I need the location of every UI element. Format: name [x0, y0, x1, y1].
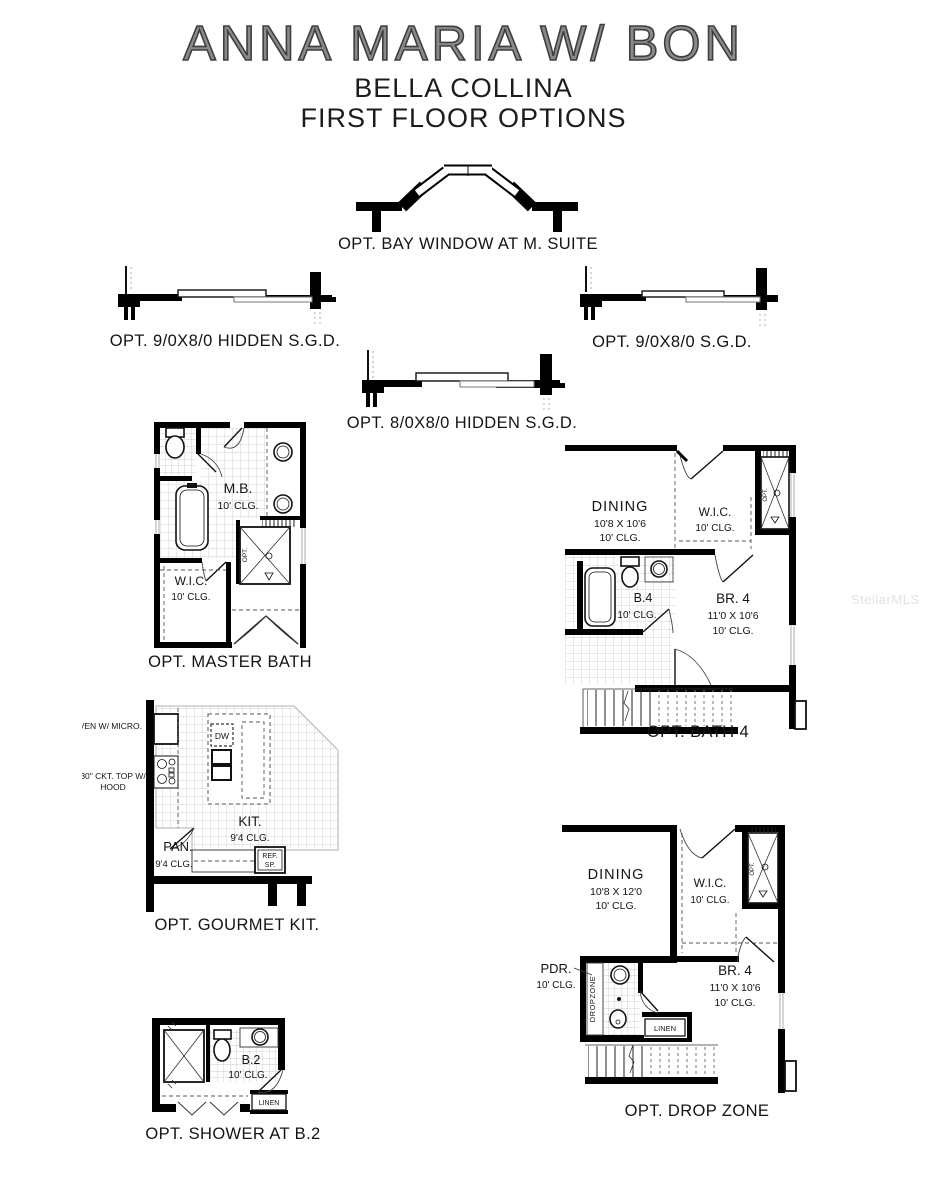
br4-label: BR. 4	[716, 591, 750, 606]
pantry-label: PAN.	[163, 839, 192, 854]
br4-ceiling: 10' CLG.	[712, 625, 753, 637]
br4-ceiling: 10' CLG.	[714, 997, 755, 1009]
dining-ceiling: 10' CLG.	[595, 900, 636, 912]
dining-label: DINING	[592, 499, 649, 515]
wic-label: W.I.C.	[699, 505, 732, 519]
bay-window-glass	[417, 165, 517, 193]
wic-room: W.I.C. 10' CLG.	[675, 451, 751, 549]
sheet-header: ANNA MARIA W/ BON BELLA COLLINA FIRST FL…	[0, 18, 927, 133]
stairs	[585, 1045, 718, 1077]
drop-zone-caption: OPT. DROP ZONE	[587, 1102, 807, 1121]
sgd-drawing	[116, 264, 338, 328]
shower-icon: OPT.	[761, 451, 789, 529]
sgd-hidden-90-caption: OPT. 9/0X8/0 HIDDEN S.G.D.	[100, 332, 350, 351]
br4-size: 11'0 X 10'6	[709, 982, 760, 994]
dw-label: DW	[215, 731, 229, 741]
shower-opt-label: OPT.	[763, 488, 769, 502]
pdr-ceiling: 10' CLG.	[536, 980, 575, 991]
linen-label: LINEN	[654, 1024, 676, 1033]
master-bath-caption: OPT. MASTER BATH	[120, 653, 340, 672]
drop-zone-drawing: DINING 10'8 X 12'0 10' CLG. W.I.C. 10' C…	[530, 813, 815, 1108]
sgd-hidden-80-caption: OPT. 8/0X8/0 HIDDEN S.G.D.	[340, 414, 584, 433]
shower-opt-label: OPT.	[750, 862, 756, 876]
sliding-door-panels	[642, 291, 760, 302]
wic-ceiling: 10' CLG.	[690, 895, 729, 906]
kitchen-label: KIT.	[238, 814, 261, 829]
br4-label: BR. 4	[718, 963, 752, 978]
stairs	[583, 689, 733, 727]
master-bath-drawing: OPT. M.B. 10' CLG. W.I.C. 10' CLG.	[152, 420, 312, 655]
drop-zone-plan: DINING 10'8 X 12'0 10' CLG. W.I.C. 10' C…	[530, 813, 815, 1108]
dining-label: DINING	[588, 867, 645, 883]
sgd-drawing	[360, 348, 565, 414]
linen-closet: LINEN	[645, 1019, 685, 1036]
sgd-90-diagram	[578, 264, 778, 328]
shower-icon: OPT.	[240, 520, 296, 584]
linen-closet: LINEN	[252, 1094, 286, 1110]
shower-b2-caption: OPT. SHOWER AT B.2	[113, 1125, 353, 1144]
oven-label: OVEN W/ MICRO.	[82, 721, 142, 731]
sink-icon	[240, 1028, 278, 1047]
sheet-name: FIRST FLOOR OPTIONS	[0, 104, 927, 132]
bedroom4: BR. 4 11'0 X 10'6 10' CLG.	[709, 937, 774, 1009]
plan-title: ANNA MARIA W/ BON	[0, 18, 927, 72]
cooktop-label2: HOOD	[100, 782, 126, 792]
cooktop-label: 30" CKT. TOP W/	[82, 771, 146, 781]
bath4-drawing: DINING 10'8 X 10'6 10' CLG. W.I.C. 10' C…	[565, 437, 815, 737]
dropzone-label: DROPZONE	[588, 976, 597, 1023]
shower-opt-label: OPT.	[242, 548, 249, 563]
br4-size: 11'0 X 10'6	[707, 610, 758, 622]
gourmet-kitchen-drawing: DW PAN. 9'4 CLG. REF. SP. OVEN W/ MICRO.…	[82, 700, 352, 914]
bedroom4: BR. 4 11'0 X 10'6 10' CLG.	[707, 555, 758, 637]
room-label: M.B.	[224, 480, 253, 496]
dining-room: DINING 10'8 X 12'0 10' CLG.	[588, 867, 645, 912]
pantry: PAN. 9'4 CLG.	[155, 828, 194, 870]
toilet-icon	[166, 428, 184, 458]
bath4-caption: OPT. BATH 4	[598, 723, 798, 742]
b2-ceiling: 10' CLG.	[228, 1070, 267, 1081]
stellar-mls-watermark: StellarMLS	[851, 592, 920, 607]
refrigerator-space: REF. SP.	[255, 847, 285, 873]
kitchen-island: DW	[208, 714, 270, 804]
gourmet-kitchen-caption: OPT. GOURMET KIT.	[117, 916, 357, 935]
floor-plan-sheet: { "header": { "title": "ANNA MARIA W/ BO…	[0, 0, 927, 1200]
b4-ceiling: 10' CLG.	[617, 610, 656, 621]
toilet-icon	[214, 1030, 231, 1061]
sgd-hidden-80-diagram	[360, 348, 565, 414]
room-ceiling: 10' CLG.	[217, 500, 258, 512]
sgd-drawing	[578, 264, 778, 328]
bath4-plan: DINING 10'8 X 10'6 10' CLG. W.I.C. 10' C…	[565, 437, 815, 737]
wic-label: W.I.C.	[694, 876, 727, 890]
b2-label: B.2	[242, 1053, 261, 1067]
community-name: BELLA COLLINA	[0, 74, 927, 102]
master-bath-plan: OPT. M.B. 10' CLG. W.I.C. 10' CLG.	[152, 420, 312, 655]
wic-ceiling: 10' CLG.	[171, 592, 210, 603]
bay-window-drawing	[356, 156, 578, 236]
sgd-hidden-90-diagram	[116, 264, 338, 328]
linen-label: LINEN	[259, 1100, 280, 1107]
dining-size: 10'8 X 12'0	[590, 886, 642, 898]
wic-ceiling: 10' CLG.	[695, 523, 734, 534]
shower-icon	[164, 1022, 204, 1088]
bay-window-caption: OPT. BAY WINDOW AT M. SUITE	[330, 235, 606, 254]
dining-size: 10'8 X 10'6	[594, 518, 646, 530]
pdr-label: PDR.	[540, 961, 571, 976]
oven-icon	[154, 714, 178, 744]
ref-label2: SP.	[265, 862, 275, 869]
wall	[356, 186, 578, 232]
kitchen-ceiling: 9'4 CLG.	[230, 833, 269, 844]
vanity-sinks	[267, 428, 292, 516]
shower-icon: OPT.	[748, 827, 778, 903]
wic-label: W.I.C.	[175, 574, 208, 588]
sgd-90-caption: OPT. 9/0X8/0 S.G.D.	[560, 333, 784, 352]
shower-b2-plan: LINEN B.2 10' CLG.	[152, 1006, 312, 1121]
shower-b2-drawing: LINEN B.2 10' CLG.	[152, 1006, 312, 1121]
pantry-ceiling: 9'4 CLG.	[155, 859, 192, 870]
gourmet-kitchen-plan: DW PAN. 9'4 CLG. REF. SP. OVEN W/ MICRO.…	[82, 700, 352, 914]
bathtub-icon	[176, 483, 208, 550]
dining-ceiling: 10' CLG.	[599, 532, 640, 544]
fireplace-box	[785, 1061, 796, 1091]
b4-label: B.4	[634, 591, 653, 605]
bay-window-diagram	[356, 156, 578, 236]
dining-room: DINING 10'8 X 10'6 10' CLG.	[592, 499, 649, 544]
ref-label: REF.	[262, 853, 277, 860]
hall-door-arc	[675, 649, 711, 685]
